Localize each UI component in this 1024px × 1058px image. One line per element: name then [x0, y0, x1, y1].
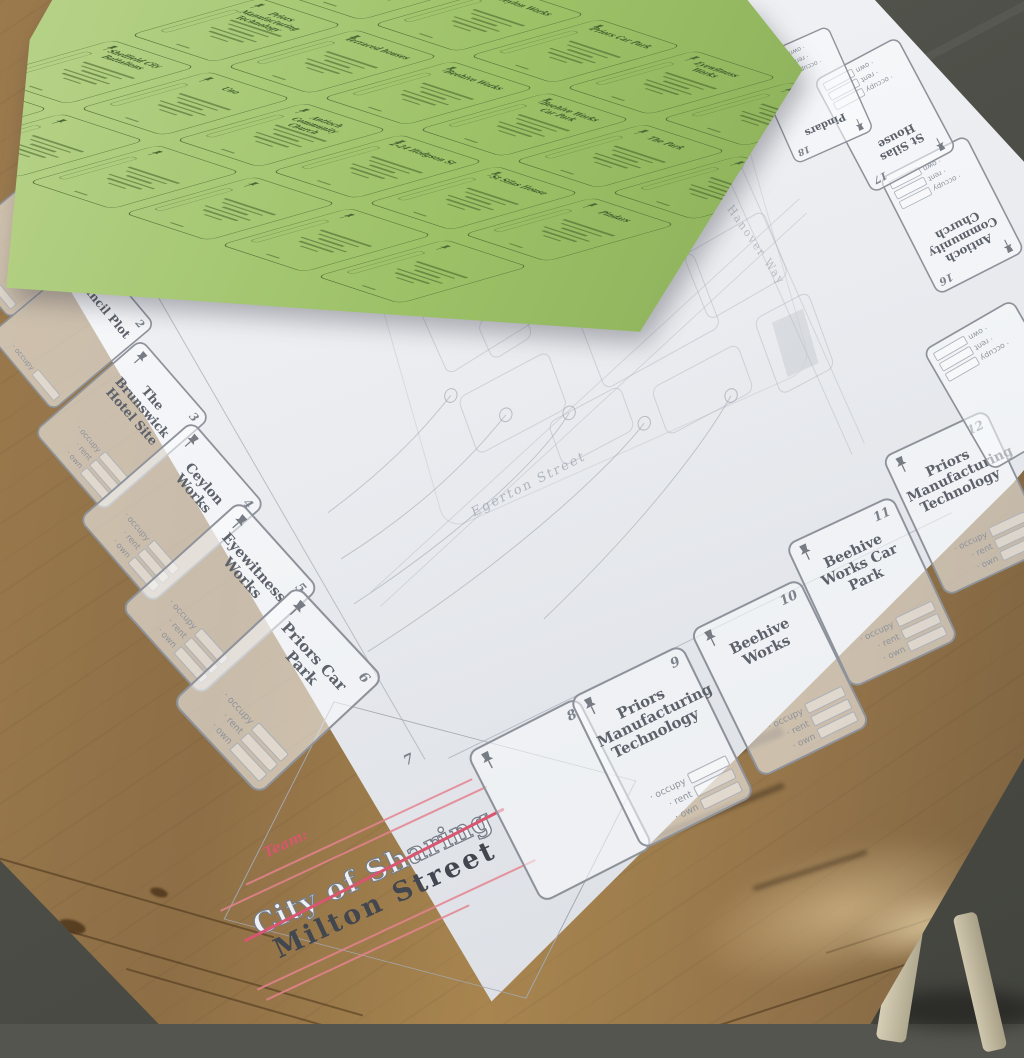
card-text-line: [128, 167, 180, 184]
property-card: [757, 113, 970, 177]
card-body-text: [719, 102, 818, 133]
card-price-line: [419, 33, 434, 38]
card-price-line: [656, 201, 671, 206]
card-price-line: [464, 138, 479, 143]
card-text-line: [563, 219, 615, 236]
card-price-line: [515, 65, 530, 70]
card-body-text: [374, 260, 473, 291]
pushpin-icon: [335, 213, 358, 220]
card-price-line: [272, 75, 287, 80]
card-text-line: [837, 142, 885, 158]
card-price-line: [176, 44, 191, 49]
card-price-line: [323, 2, 338, 7]
card-body-text: [668, 176, 767, 207]
card-body-text: [431, 8, 530, 39]
card-text-line: [473, 9, 525, 26]
card-price-line: [317, 180, 332, 185]
card-text-line: [467, 188, 519, 205]
card-price-line: [29, 86, 44, 91]
card-text-line: [710, 177, 762, 194]
card-text-line: [416, 261, 468, 278]
card-price-line: [266, 254, 281, 259]
card-price-line: [170, 222, 185, 227]
card-text-line: [224, 198, 276, 215]
card-price-line: [560, 170, 575, 175]
card-text-line: [614, 146, 666, 163]
card-text-line: [761, 104, 813, 121]
card-text-line: [320, 230, 372, 247]
card-price-line: [707, 128, 722, 133]
card-body-text: [527, 39, 626, 70]
card-text-line: [371, 156, 423, 173]
pushpin-icon: [431, 244, 454, 251]
card-text-line: [569, 41, 621, 58]
card-body-text: [0, 134, 89, 165]
card-body-text: [815, 134, 914, 165]
card-text-line: [857, 135, 909, 152]
pushpin-icon: [725, 160, 748, 167]
card-text-line: [355, 0, 392, 1]
pushpin-icon: [143, 150, 166, 157]
card-text-line: [836, 151, 856, 158]
card-body-text: [329, 155, 428, 186]
green-sheet-paper: Ceylon WorksPriors Car ParkEyewitness Wo…: [0, 0, 1024, 1024]
card-price-line: [221, 149, 236, 154]
card-text-line: [326, 51, 378, 68]
card-text-line: [422, 83, 474, 100]
card-price-line: [368, 107, 383, 112]
card-text-line: [32, 135, 84, 152]
pushpin-icon: [47, 118, 70, 125]
card-body-text: [182, 197, 281, 228]
card-body-text: [425, 186, 524, 217]
card-body-text: [137, 92, 236, 123]
card-text-line: [854, 139, 897, 153]
pushpin-icon: [239, 181, 262, 188]
pushpin-icon: [776, 87, 799, 94]
card-body-text: [572, 144, 671, 175]
card-body-text: [380, 81, 479, 112]
green-card-sheet: Ceylon WorksPriors Car ParkEyewitness Wo…: [0, 0, 1024, 1024]
card-body-text: [86, 165, 185, 196]
card-body-text: [521, 218, 620, 249]
card-slot-box: [786, 125, 868, 149]
card-text-line: [855, 143, 882, 152]
card-body-text: [284, 50, 383, 81]
photo-scene: Egerton StreetHanover Way Team: City of …: [0, 0, 1024, 1024]
card-price-line: [362, 285, 377, 290]
card-price-line: [611, 96, 626, 101]
card-price-line: [413, 212, 428, 217]
card-text-line: [835, 146, 872, 158]
card-body-text: [278, 228, 377, 259]
card-title: [874, 118, 956, 145]
card-text-line: [179, 93, 231, 110]
card-price-line: [803, 159, 818, 164]
card-price-line: [509, 243, 524, 248]
card-price-line: [74, 191, 89, 196]
pushpin-icon: [872, 118, 895, 125]
card-price-line: [125, 117, 140, 122]
